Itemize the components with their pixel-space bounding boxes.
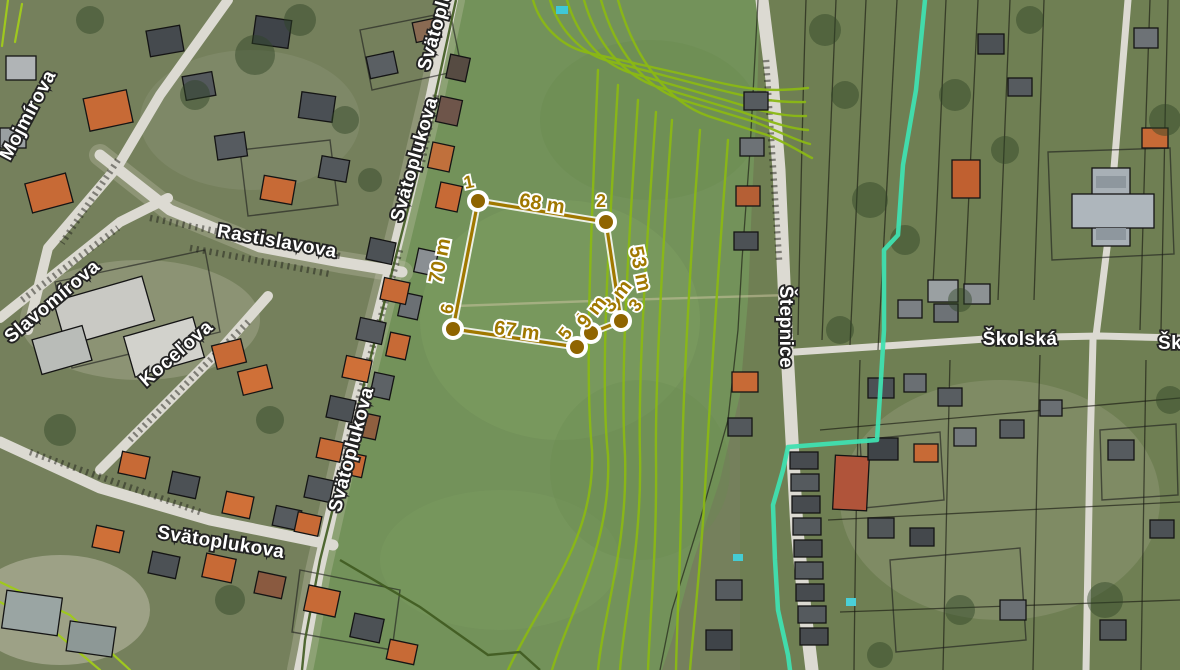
satellite-map[interactable]: 1 2 3 4 5 6 68 m 53 m 3 m 9 m 67 m 70 m … [0,0,1180,670]
pool [556,6,568,14]
pool [733,554,743,561]
vertex-handle-6[interactable] [444,320,462,338]
pool [846,598,856,606]
vertex-label-2: 2 [596,191,606,211]
street-label-skolska: Školská [983,328,1058,350]
field-dark-patch [540,40,760,200]
vertex-handle-2[interactable] [597,213,615,231]
vertex-handle-1[interactable] [469,192,487,210]
street-label-skolska-edge: Školská [1158,332,1180,354]
street-label-stepnice: Štepnice [775,286,797,368]
map-canvas[interactable]: 1 2 3 4 5 6 68 m 53 m 3 m 9 m 67 m 70 m … [0,0,1180,670]
